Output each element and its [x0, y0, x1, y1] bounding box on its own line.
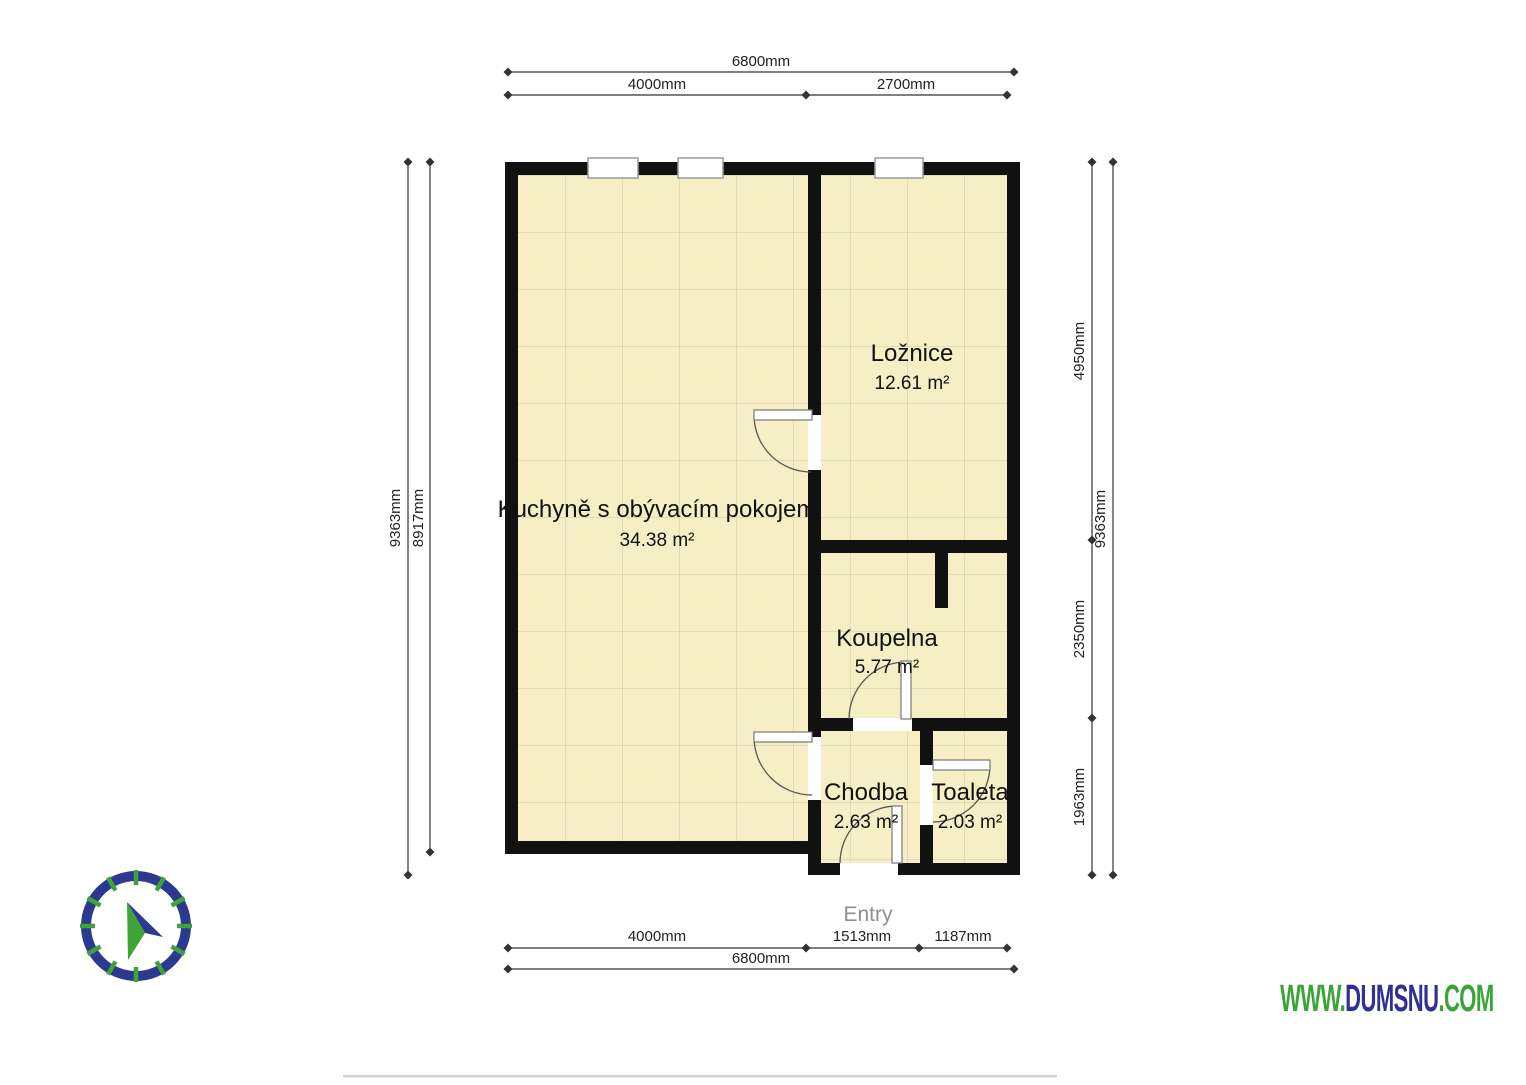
window-icon: [588, 158, 638, 178]
dim-right-seg-3: 1963mm: [1071, 768, 1088, 826]
wall-top: [505, 162, 1020, 175]
room-area-chodba: 2.63 m²: [834, 812, 898, 833]
brand-logo: WWW.DUMSNU.COM: [1250, 978, 1494, 1021]
floor-plan: Kuchyně s obývacím pokojem 34.38 m² Ložn…: [0, 0, 1526, 1080]
room-area-loznice: 12.61 m²: [875, 373, 950, 394]
room-area-koupelna: 5.77 m²: [855, 657, 919, 678]
room-label-chodba: Chodba: [824, 779, 909, 806]
brand-card: WWW.DUMSNU.COM: [1250, 952, 1526, 1046]
wall-right: [1007, 162, 1020, 875]
brand-domain: DUMSNU: [1345, 978, 1438, 1020]
wall-stub: [935, 553, 948, 608]
dim-bottom-seg-1: 4000mm: [628, 928, 686, 945]
dim-top-total: 6800mm: [732, 53, 790, 70]
dim-right-outer: 9363mm: [1092, 490, 1109, 548]
window-icon: [678, 158, 723, 178]
compass-icon: [80, 870, 192, 982]
room-area-kuchyne: 34.38 m²: [620, 530, 695, 551]
dim-top-seg-1: 4000mm: [628, 76, 686, 93]
wall-bathroom-bottom: [808, 718, 1020, 731]
dim-bottom-total: 6800mm: [732, 950, 790, 967]
room-area-toaleta: 2.03 m²: [938, 812, 1002, 833]
bottom-divider: [343, 1075, 1057, 1078]
room-label-kuchyne: Kuchyně s obývacím pokojem: [498, 496, 817, 523]
brand-www: WWW.: [1280, 978, 1345, 1020]
dim-top-seg-2: 2700mm: [877, 76, 935, 93]
room-label-loznice: Ložnice: [871, 340, 954, 367]
wall-bedroom-bathroom: [808, 540, 1020, 553]
dim-left-outer: 9363mm: [387, 489, 404, 547]
room-label-toaleta: Toaleta: [931, 779, 1009, 806]
dim-right-seg-1: 4950mm: [1071, 322, 1088, 380]
dim-left-inner: 8917mm: [410, 489, 427, 547]
entry-label: Entry: [843, 903, 893, 926]
brand-com: .COM: [1438, 978, 1493, 1020]
dim-bottom-seg-2: 1513mm: [833, 928, 891, 945]
dim-right-seg-2: 2350mm: [1071, 600, 1088, 658]
window-icon: [875, 158, 923, 178]
dim-bottom-seg-3: 1187mm: [934, 928, 991, 945]
wall-bottom-right: [808, 863, 1020, 875]
wall-living-bottom: [505, 841, 821, 854]
room-label-koupelna: Koupelna: [836, 625, 938, 652]
